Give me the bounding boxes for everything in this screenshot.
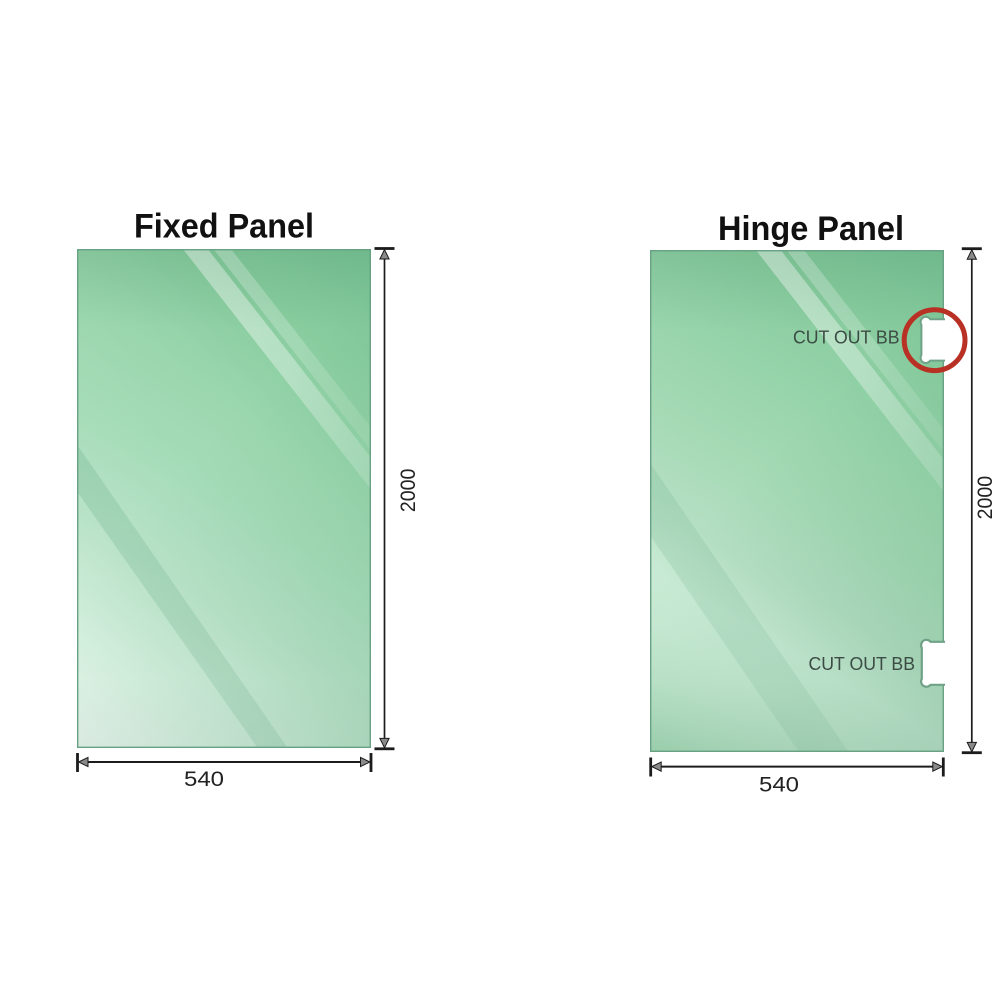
svg-text:Fixed Panel: Fixed Panel: [134, 208, 314, 246]
svg-text:2000: 2000: [396, 469, 420, 513]
svg-text:CUT OUT BB: CUT OUT BB: [793, 327, 900, 348]
svg-text:Hinge Panel: Hinge Panel: [718, 210, 904, 248]
svg-text:540: 540: [759, 773, 799, 797]
svg-text:2000: 2000: [973, 476, 997, 520]
svg-text:540: 540: [184, 767, 224, 791]
svg-text:CUT OUT BB: CUT OUT BB: [809, 653, 916, 674]
